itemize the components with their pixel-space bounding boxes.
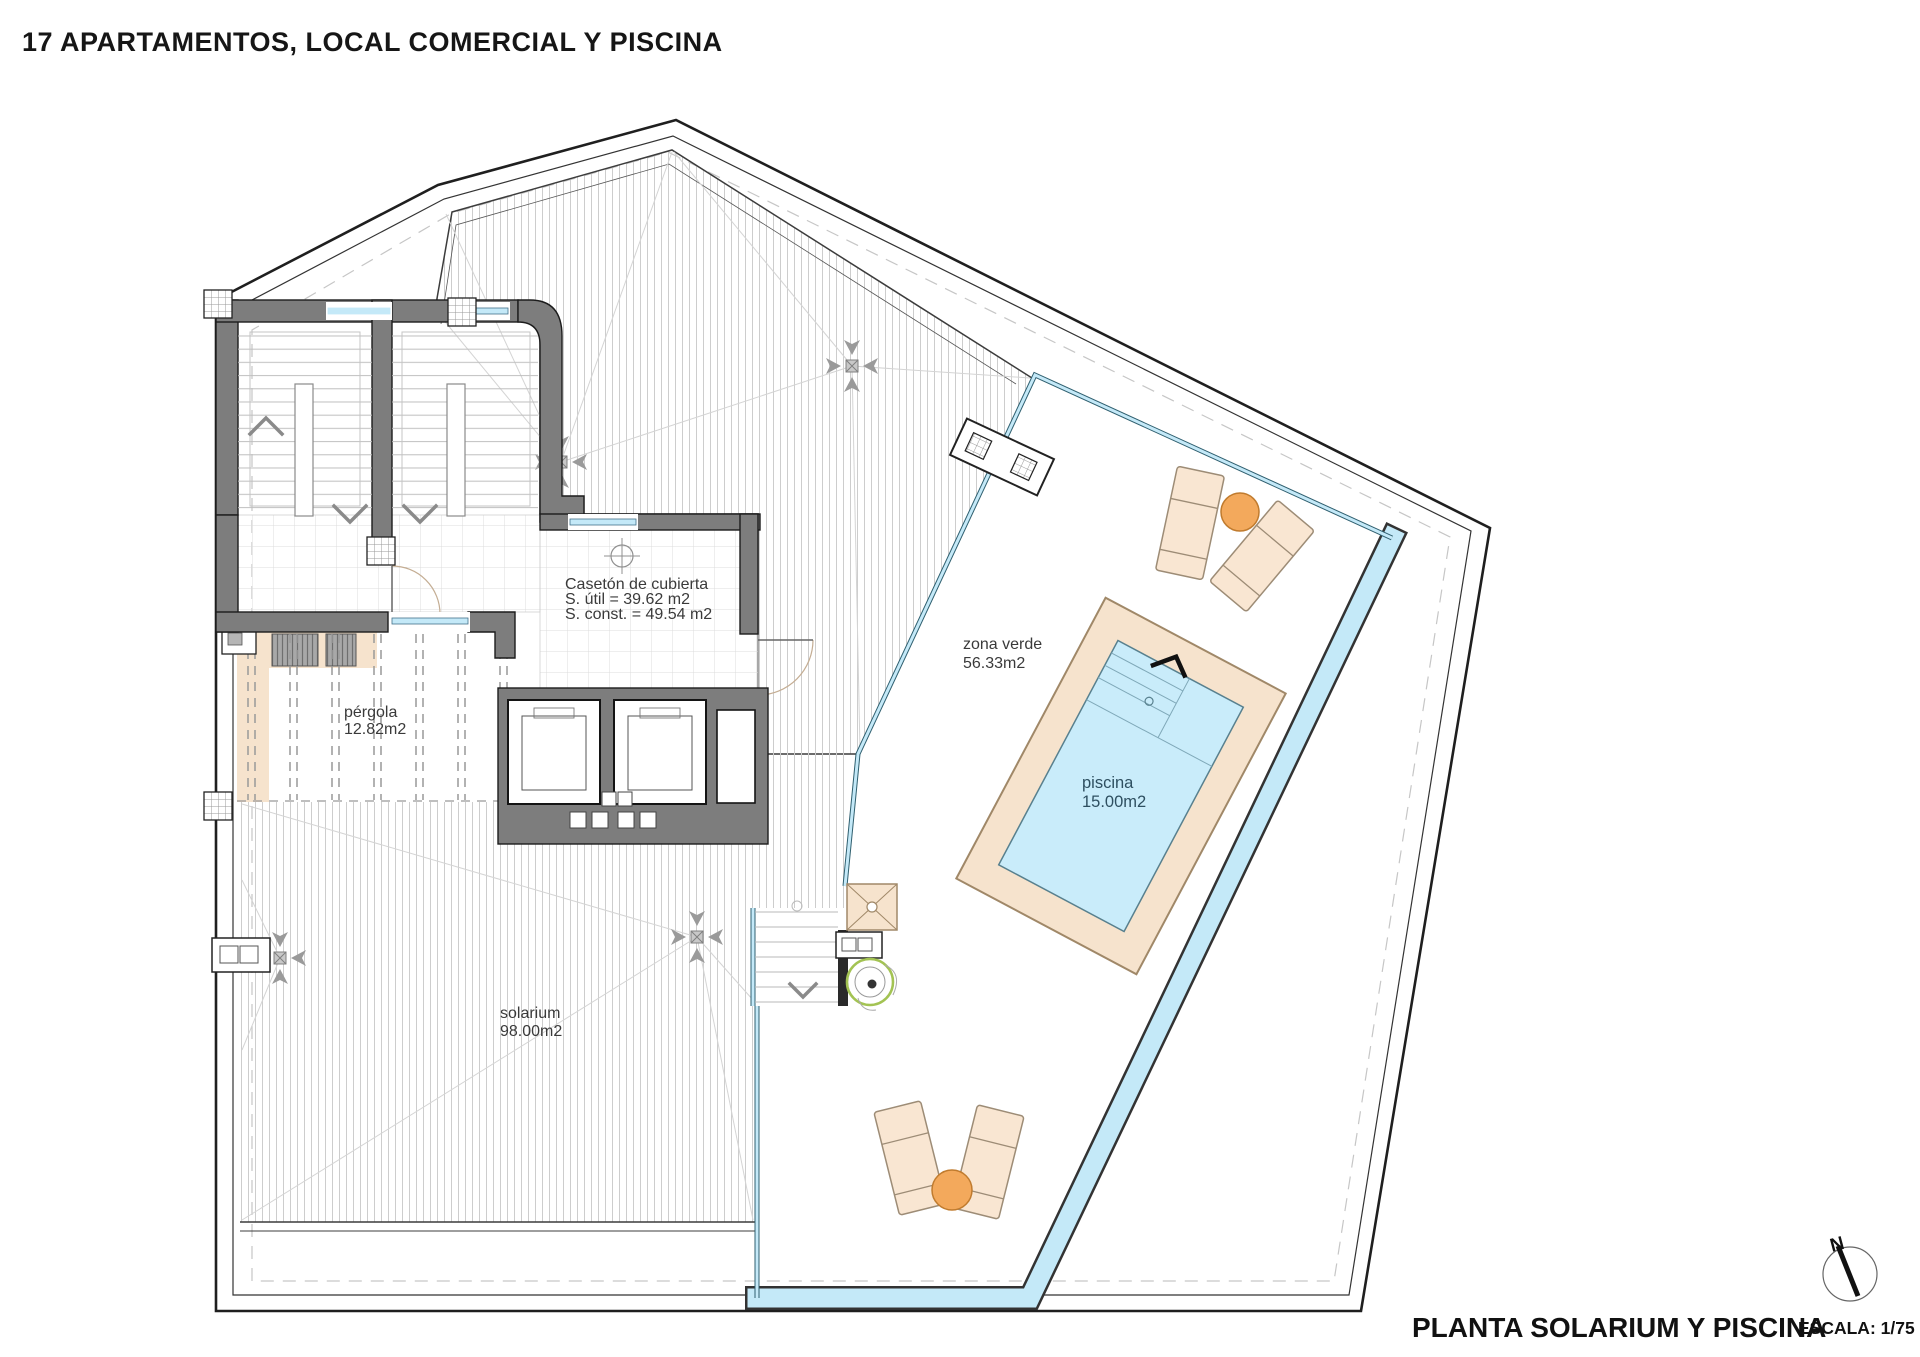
piscina-label: piscina 15.00m2	[1082, 774, 1146, 811]
page-title: 17 APARTAMENTOS, LOCAL COMERCIAL Y PISCI…	[22, 27, 723, 57]
outdoor-shower	[847, 884, 897, 930]
stairwell-right	[392, 325, 538, 516]
elevator-shaft-1	[508, 700, 600, 804]
rooftop-unit	[272, 634, 318, 666]
solarium-deck	[240, 802, 755, 1222]
north-compass: N	[1823, 1233, 1877, 1301]
caseton-label: Casetón de cubierta S. útil = 39.62 m2 S…	[565, 576, 713, 623]
stairwell-left	[238, 325, 372, 516]
wall-bench	[212, 938, 270, 972]
pergola-label: pérgola 12.82m2	[344, 704, 406, 738]
stair-railing	[447, 384, 465, 516]
side-table	[1221, 493, 1259, 531]
solarium-label: solarium 98.00m2	[500, 1005, 565, 1040]
north-label: N	[1828, 1233, 1847, 1257]
plan-title: PLANTA SOLARIUM Y PISCINA	[1412, 1312, 1826, 1343]
foot-bath-bench	[836, 932, 882, 958]
elevator-shaft-2	[614, 700, 706, 804]
elevator-block	[498, 688, 768, 844]
side-table	[932, 1170, 972, 1210]
floor-plan-svg: 17 APARTAMENTOS, LOCAL COMERCIAL Y PISCI…	[0, 0, 1920, 1357]
scale-label: ESCALA: 1/75	[1798, 1318, 1915, 1338]
duct-room	[717, 710, 755, 803]
stair-railing	[295, 384, 313, 516]
floor-plan-sheet: 17 APARTAMENTOS, LOCAL COMERCIAL Y PISCI…	[0, 0, 1920, 1357]
rooftop-unit	[326, 634, 356, 666]
